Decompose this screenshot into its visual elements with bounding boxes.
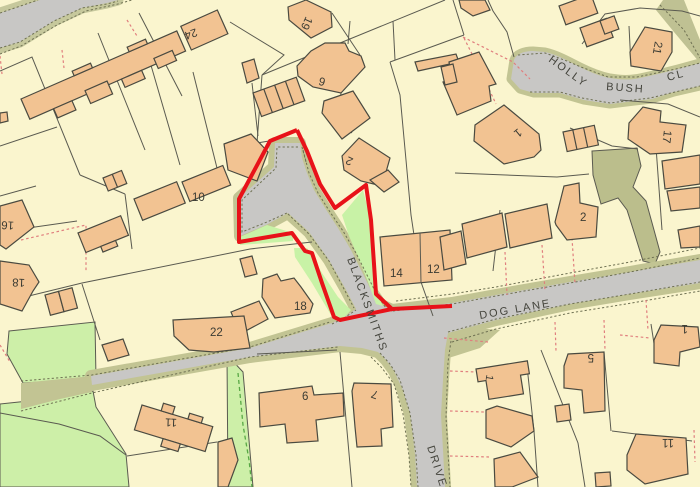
svg-text:12: 12 — [427, 264, 440, 276]
svg-text:11: 11 — [662, 436, 674, 448]
svg-text:1: 1 — [682, 322, 688, 334]
svg-text:10: 10 — [192, 192, 205, 204]
svg-text:18: 18 — [294, 301, 307, 313]
svg-text:17: 17 — [659, 130, 672, 144]
svg-text:21: 21 — [650, 40, 664, 55]
svg-text:18: 18 — [12, 276, 25, 288]
svg-text:5: 5 — [588, 351, 594, 363]
svg-text:16: 16 — [1, 218, 14, 231]
svg-text:6: 6 — [302, 391, 308, 403]
svg-text:11: 11 — [165, 415, 177, 427]
svg-text:22: 22 — [210, 327, 223, 339]
svg-text:2: 2 — [580, 212, 586, 224]
svg-text:14: 14 — [390, 268, 403, 280]
